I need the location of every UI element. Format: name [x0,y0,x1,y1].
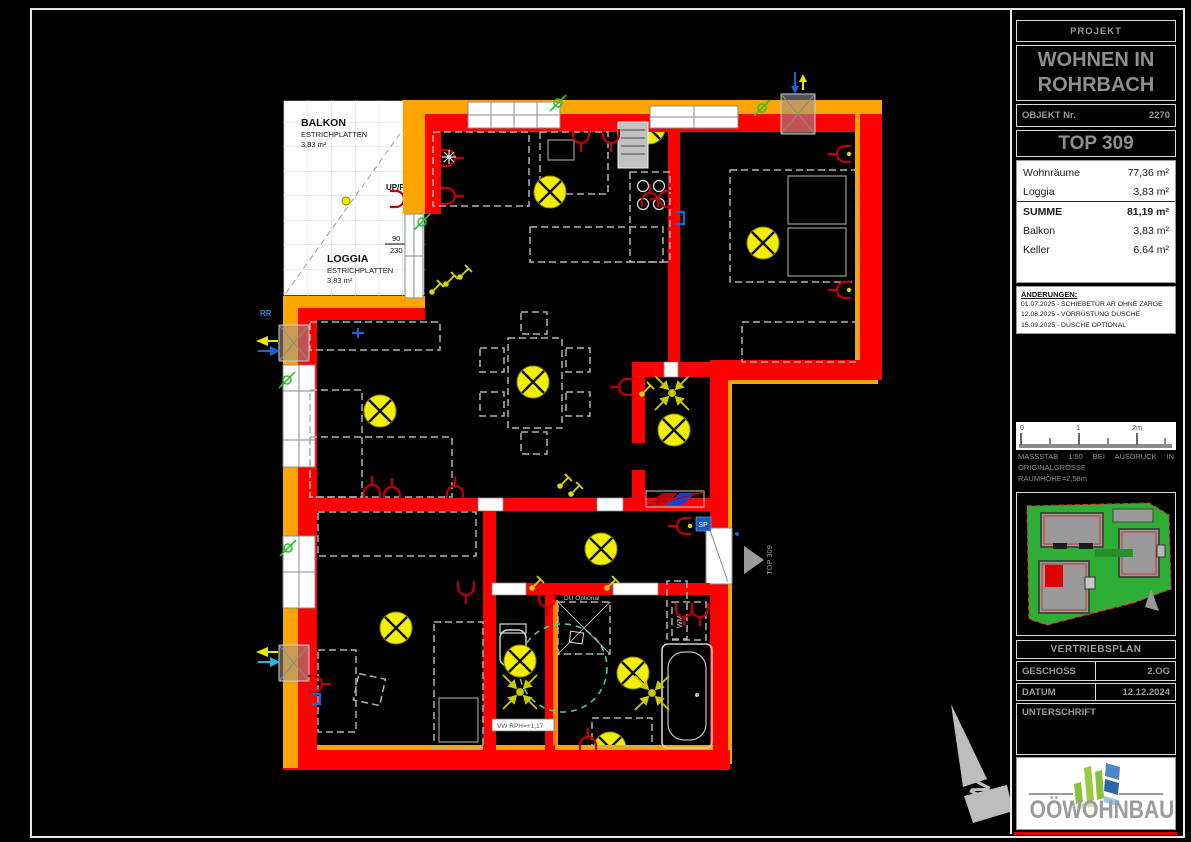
outlet-icon [441,188,464,204]
area-row: Wohnräume77,36 m² [1017,163,1175,182]
wardrobe-2 [318,512,476,556]
switch-star-icon [655,376,689,410]
geschoss-value: 2.OG [1147,666,1170,677]
entrance-marker: TOP 309 [744,545,774,575]
title-block-divider [1010,8,1012,834]
ceiling-light-icon [747,227,779,259]
door-width-dim: 90 [392,234,400,243]
balkon-material: ESTRICHPLATTEN [301,130,367,139]
outlet-icon [642,184,658,207]
outlet-icon [364,476,380,499]
scale-tick-1: 1 [1076,423,1080,432]
tv-board [310,322,440,350]
unterschrift-label: UNTERSCHRIFT [1022,707,1096,718]
balkon-area: 3,83 m² [301,140,327,149]
aenderung-item: 12.08.2025 - VORRÜSTUNG DUSCHE [1021,310,1171,320]
shaft-box [279,325,309,361]
aenderungen-box: ÄNDERUNGEN: 01.07.2025 - SCHIEBETÜR AR O… [1016,286,1176,334]
scale-tick-2: 2m [1132,423,1142,432]
datum-value: 12.12.2024 [1122,687,1170,698]
geschoss-label: GESCHOSS [1022,666,1076,677]
outlet-icon [610,379,633,395]
outlet-icon [603,129,619,152]
ceiling-light-icon [364,395,396,427]
site-plan [1016,492,1176,636]
switch-icon [429,280,444,295]
datum-box: DATUM 12.12.2024 [1016,683,1176,701]
sofa [310,390,362,497]
area-table: Wohnräume77,36 m² Loggia3,83 m² SUMME81,… [1016,160,1176,283]
loggia-area: 3,83 m² [327,276,353,285]
blue-connection-icon [352,328,364,338]
site-unit-highlight [1045,565,1063,587]
area-row: Loggia3,83 m² [1017,182,1175,201]
unterschrift-box: UNTERSCHRIFT [1016,703,1176,755]
shaft-box [279,645,309,681]
project-name: WOHNEN IN ROHRBACH [1031,48,1161,98]
loggia-name: LOGGIA [327,253,369,265]
balkon-name: BALKON [301,117,346,129]
double-bed [730,170,856,282]
aenderung-item: 01.07.2025 - SCHIEBETÜR AR OHNE ZARGE [1021,300,1171,310]
desk [318,650,356,732]
geschoss-box: GESCHOSS 2.OG [1016,661,1176,681]
du-optional-label: DU Optional [564,595,600,602]
site-building-3 [1039,561,1095,613]
objekt-box: OBJEKT Nr. 2270 [1016,104,1176,127]
top-box: TOP 309 [1016,130,1176,157]
floor-plan: BALKON ESTRICHPLATTEN 3,83 m² LOGGIA EST… [0,0,1010,842]
switch-icon [457,265,472,280]
area-row-sum: SUMME81,19 m² [1017,201,1175,221]
vertriebsplan-box: VERTRIEBSPLAN [1016,640,1176,659]
door-height-dim: 230 [390,246,403,255]
aenderung-item: 15.09.2025 - DUSCHE OPTIONAL [1021,321,1171,331]
rr-label: RR [260,309,272,318]
outlet-icon [668,518,691,534]
project-name-box: WOHNEN IN ROHRBACH [1016,45,1176,101]
scale-bar: 0 1 2m [1016,422,1176,450]
logo-text: OÖWOHNBAU [1030,796,1163,825]
scale-tick-0: 0 [1020,423,1024,432]
chair [353,674,385,706]
site-building-1 [1041,513,1103,549]
objekt-number: 2270 [1149,110,1170,121]
area-row: Balkon3,83 m² [1017,221,1175,240]
svg-text:SP: SP [699,522,709,529]
datum-label: DATUM [1022,687,1056,698]
balcony-light-icon [342,197,350,205]
ceiling-light-icon [658,414,690,446]
top-number: TOP 309 [1058,133,1133,155]
bathtub [662,644,712,748]
projekt-label: PROJEKT [1070,26,1122,37]
plan-sheet: BALKON ESTRICHPLATTEN 3,83 m² LOGGIA EST… [0,0,1191,842]
switch-icon [568,482,583,497]
switch-icon [557,474,572,489]
entrance-label: TOP 309 [765,545,774,575]
fridge [618,122,648,168]
kitchen-island [530,227,663,262]
ceiling-light-icon [517,366,549,398]
scale-note: MASSSTAB 1:50 BEI AUSDRUCK IN ORIGINALGR… [1018,452,1174,485]
ceiling-light-icon [380,612,412,644]
wardrobe [742,322,856,362]
outlet-icon [458,581,474,604]
sp-box: SP [696,517,711,531]
snowflake-icon [442,150,456,164]
switch-icon [443,272,458,287]
projekt-box: PROJEKT [1016,20,1176,42]
ceiling-light-icon [504,645,536,677]
switch-star-icon [635,676,669,710]
vw-label: VW RPH=+1,17 [497,723,544,730]
shaft-box [781,94,815,134]
north-arrow: N [951,704,1010,823]
sheet-red-edge [1014,832,1177,835]
aenderungen-heading: ÄNDERUNGEN: [1021,289,1171,300]
area-row: Keller6,64 m² [1017,240,1175,259]
loggia-material: ESTRICHPLATTEN [327,266,393,275]
logo-box: OÖWOHNBAU [1016,757,1176,830]
ceiling-light-icon [534,176,566,208]
single-bed [434,622,483,748]
objekt-label: OBJEKT Nr. [1022,110,1076,121]
ceiling-light-icon [585,533,617,565]
